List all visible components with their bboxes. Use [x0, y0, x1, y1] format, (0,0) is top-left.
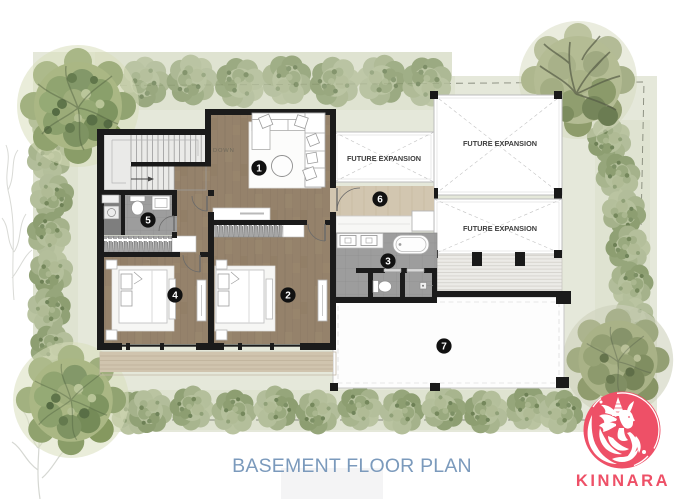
svg-text:FUTURE EXPANSION: FUTURE EXPANSION — [347, 154, 421, 163]
svg-text:3: 3 — [385, 256, 391, 267]
svg-text:6: 6 — [377, 194, 383, 205]
svg-text:FUTURE EXPANSION: FUTURE EXPANSION — [463, 139, 537, 148]
svg-text:7: 7 — [441, 341, 447, 352]
svg-text:2: 2 — [285, 290, 291, 301]
svg-text:1: 1 — [256, 163, 262, 174]
svg-text:KINNARA: KINNARA — [576, 472, 670, 490]
svg-text:BASEMENT FLOOR PLAN: BASEMENT FLOOR PLAN — [232, 455, 472, 477]
svg-text:FUTURE EXPANSION: FUTURE EXPANSION — [463, 224, 537, 233]
svg-text:4: 4 — [172, 290, 178, 301]
svg-text:DOWN: DOWN — [213, 148, 235, 154]
svg-text:5: 5 — [145, 215, 151, 226]
